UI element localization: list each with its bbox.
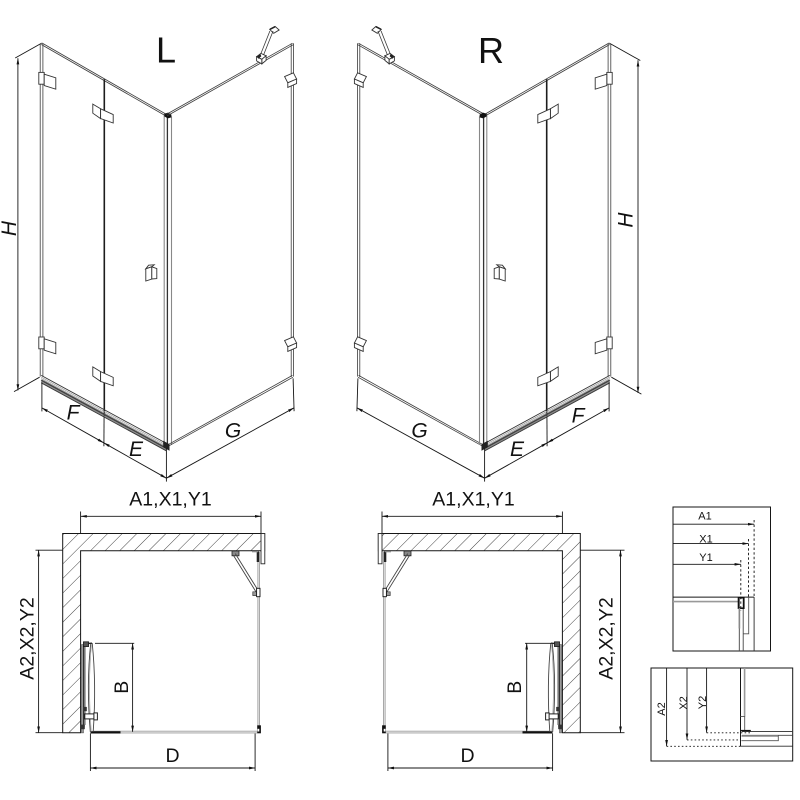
svg-text:H: H: [615, 212, 638, 228]
svg-text:Y1: Y1: [699, 552, 712, 564]
svg-text:A2,X2,Y2: A2,X2,Y2: [17, 597, 39, 679]
svg-text:B: B: [111, 681, 133, 694]
svg-text:E: E: [129, 438, 144, 461]
svg-text:E: E: [510, 438, 525, 461]
svg-text:D: D: [460, 745, 474, 767]
svg-text:D: D: [165, 745, 179, 767]
svg-text:L: L: [156, 30, 176, 71]
svg-text:F: F: [67, 402, 81, 425]
svg-text:R: R: [478, 30, 504, 71]
svg-text:G: G: [411, 420, 427, 443]
svg-text:F: F: [572, 405, 586, 428]
svg-text:X2: X2: [678, 696, 690, 709]
svg-text:X1: X1: [699, 534, 712, 546]
svg-text:A2: A2: [656, 702, 668, 715]
svg-text:H: H: [0, 220, 21, 236]
svg-text:A1,X1,Y1: A1,X1,Y1: [129, 489, 211, 511]
svg-text:G: G: [225, 420, 241, 443]
svg-text:A2,X2,Y2: A2,X2,Y2: [596, 597, 618, 679]
svg-text:B: B: [504, 681, 526, 694]
svg-text:Y2: Y2: [697, 696, 709, 709]
svg-text:A1: A1: [698, 511, 711, 523]
svg-text:A1,X1,Y1: A1,X1,Y1: [432, 489, 514, 511]
